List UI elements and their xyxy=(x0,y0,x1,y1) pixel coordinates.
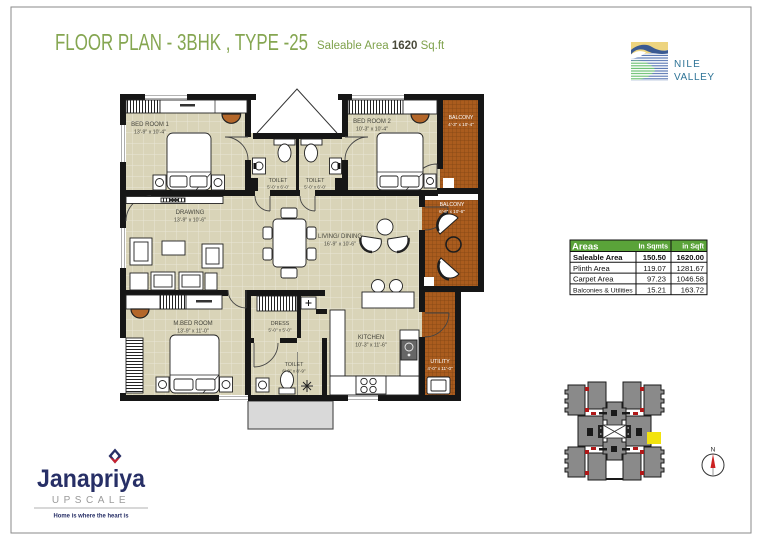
svg-text:10'-3" x 11'-6": 10'-3" x 11'-6" xyxy=(355,343,387,349)
svg-text:16'-9" x 10'-6": 16'-9" x 10'-6" xyxy=(324,242,356,248)
svg-text:Balconies & Utilities: Balconies & Utilities xyxy=(573,287,633,294)
svg-text:10'-3" x 10'-4": 10'-3" x 10'-4" xyxy=(356,127,388,133)
svg-text:150.50: 150.50 xyxy=(643,253,666,262)
svg-text:BALCONY: BALCONY xyxy=(440,202,465,208)
svg-text:97.23: 97.23 xyxy=(647,275,666,284)
svg-text:4'-0" x 11'-0": 4'-0" x 11'-0" xyxy=(427,366,453,371)
svg-text:BED ROOM 2: BED ROOM 2 xyxy=(353,119,391,125)
svg-text:5'-0" x 5'-0": 5'-0" x 5'-0" xyxy=(268,328,292,333)
svg-text:TOILET: TOILET xyxy=(269,178,288,184)
svg-text:UPSCALE: UPSCALE xyxy=(52,495,130,506)
svg-text:1281.67: 1281.67 xyxy=(677,264,704,273)
svg-text:1046.58: 1046.58 xyxy=(677,275,704,284)
svg-text:in Sqft: in Sqft xyxy=(682,244,704,251)
svg-text:DRAWING: DRAWING xyxy=(176,210,205,216)
svg-text:Home is where the heart is: Home is where the heart is xyxy=(54,513,129,520)
svg-text:N: N xyxy=(711,447,716,454)
svg-text:15.21: 15.21 xyxy=(647,285,666,294)
svg-text:VALLEY: VALLEY xyxy=(674,72,715,83)
svg-text:UTILITY: UTILITY xyxy=(430,359,450,365)
svg-text:1620.00: 1620.00 xyxy=(677,253,704,262)
svg-text:TOILET: TOILET xyxy=(285,362,304,368)
svg-text:5'-0' x 6'-0': 5'-0' x 6'-0' xyxy=(304,185,326,190)
svg-text:NILE: NILE xyxy=(674,59,701,70)
svg-text:Saleable Area 1620 Sq.ft: Saleable Area 1620 Sq.ft xyxy=(317,40,445,52)
svg-text:13'-9" x 10'-4": 13'-9" x 10'-4" xyxy=(134,130,166,136)
svg-text:TOILET: TOILET xyxy=(306,178,325,184)
svg-text:6'-6" x 10'-6": 6'-6" x 10'-6" xyxy=(439,209,465,214)
svg-text:In Sqmts: In Sqmts xyxy=(638,244,668,251)
svg-text:FLOOR PLAN - 3BHK , TYPE -25: FLOOR PLAN - 3BHK , TYPE -25 xyxy=(55,29,308,55)
svg-text:4'-3" x 10'-4": 4'-3" x 10'-4" xyxy=(448,122,474,127)
svg-text:119.07: 119.07 xyxy=(643,264,666,273)
svg-text:13'-9" x 10'-6": 13'-9" x 10'-6" xyxy=(174,218,206,224)
svg-text:163.72: 163.72 xyxy=(681,285,704,294)
svg-text:DRESS: DRESS xyxy=(271,321,290,327)
svg-text:6'-0" x 8'-9": 6'-0" x 8'-9" xyxy=(282,369,306,374)
svg-text:LIVING/ DINING: LIVING/ DINING xyxy=(318,234,362,240)
svg-text:KITCHEN: KITCHEN xyxy=(358,335,384,341)
svg-text:13'-9" x 11'-0": 13'-9" x 11'-0" xyxy=(177,329,209,335)
svg-text:BED ROOM 1: BED ROOM 1 xyxy=(131,122,169,128)
svg-text:Saleable Area: Saleable Area xyxy=(573,253,623,262)
svg-text:BALCONY: BALCONY xyxy=(449,115,474,121)
svg-text:Janapriya: Janapriya xyxy=(37,465,146,493)
svg-text:M.BED ROOM: M.BED ROOM xyxy=(173,321,212,327)
svg-text:5'-0' x 6'-0': 5'-0' x 6'-0' xyxy=(267,185,289,190)
svg-text:Areas: Areas xyxy=(572,242,598,253)
svg-text:Carpet Area: Carpet Area xyxy=(573,275,614,284)
svg-text:Plinth Area: Plinth Area xyxy=(573,264,611,273)
